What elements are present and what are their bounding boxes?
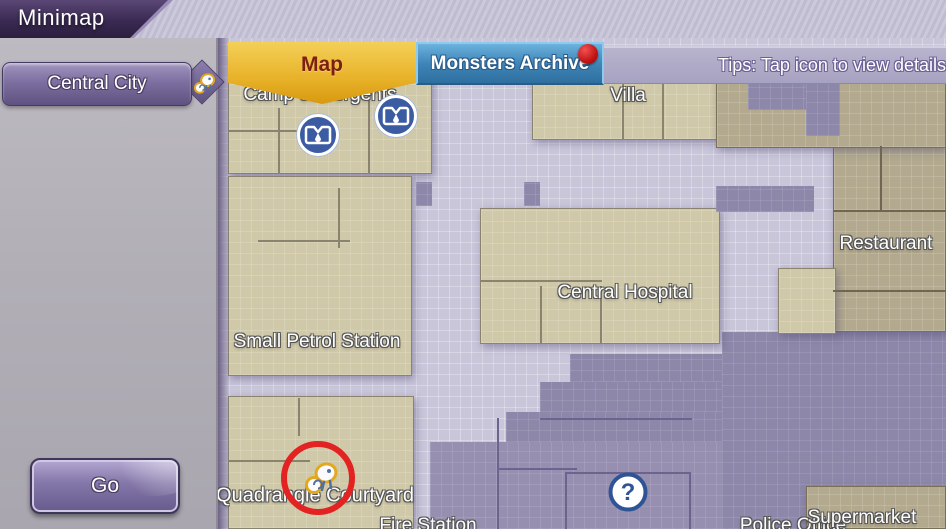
region-button-central-city[interactable]: Central City [2, 62, 192, 106]
label-restaurant: Restaurant [840, 233, 933, 255]
question-mark-icon[interactable]: ? [608, 472, 648, 512]
building-small-block [778, 268, 836, 334]
map-zone-purple [540, 382, 722, 412]
map-edge-shade [218, 38, 230, 529]
sidebar: Central City Go [0, 38, 218, 529]
label-supermarket: Supermarket [808, 507, 917, 529]
go-button-label: Go [91, 474, 119, 498]
tab-monsters-archive-label: Monsters Archive [431, 53, 590, 75]
map-zone-purple [716, 186, 814, 212]
map-zone-purple [524, 182, 540, 206]
map-zone-purple [416, 182, 432, 206]
tab-monsters-archive[interactable]: Monsters Archive [416, 42, 604, 85]
label-fire-station: Fire Station [379, 515, 476, 529]
notification-dot [578, 44, 598, 64]
map-zone-purple [506, 412, 722, 442]
tab-map-label: Map [301, 53, 343, 76]
map-viewport[interactable]: Camp of Sergents Villa Central Hospital … [218, 38, 946, 529]
label-villa: Villa [610, 85, 646, 107]
label-small-petrol-station: Small Petrol Station [234, 331, 401, 353]
map-zone-purple [748, 82, 806, 110]
minimap-screen: Camp of Sergents Villa Central Hospital … [0, 0, 946, 529]
region-label: Central City [47, 73, 146, 95]
monster-den-icon[interactable] [374, 94, 418, 138]
page-title: Minimap [18, 5, 105, 31]
go-button[interactable]: Go [30, 458, 180, 514]
tips-bar: Tips: Tap icon to view details [604, 46, 946, 84]
label-central-hospital: Central Hospital [557, 282, 692, 304]
octopus-boss-icon [192, 71, 218, 97]
red-circle-highlight [281, 441, 355, 515]
map-zone-purple [570, 354, 722, 382]
monster-den-icon[interactable] [296, 113, 340, 157]
svg-text:?: ? [621, 479, 636, 506]
tips-text: Tips: Tap icon to view details [718, 55, 946, 76]
